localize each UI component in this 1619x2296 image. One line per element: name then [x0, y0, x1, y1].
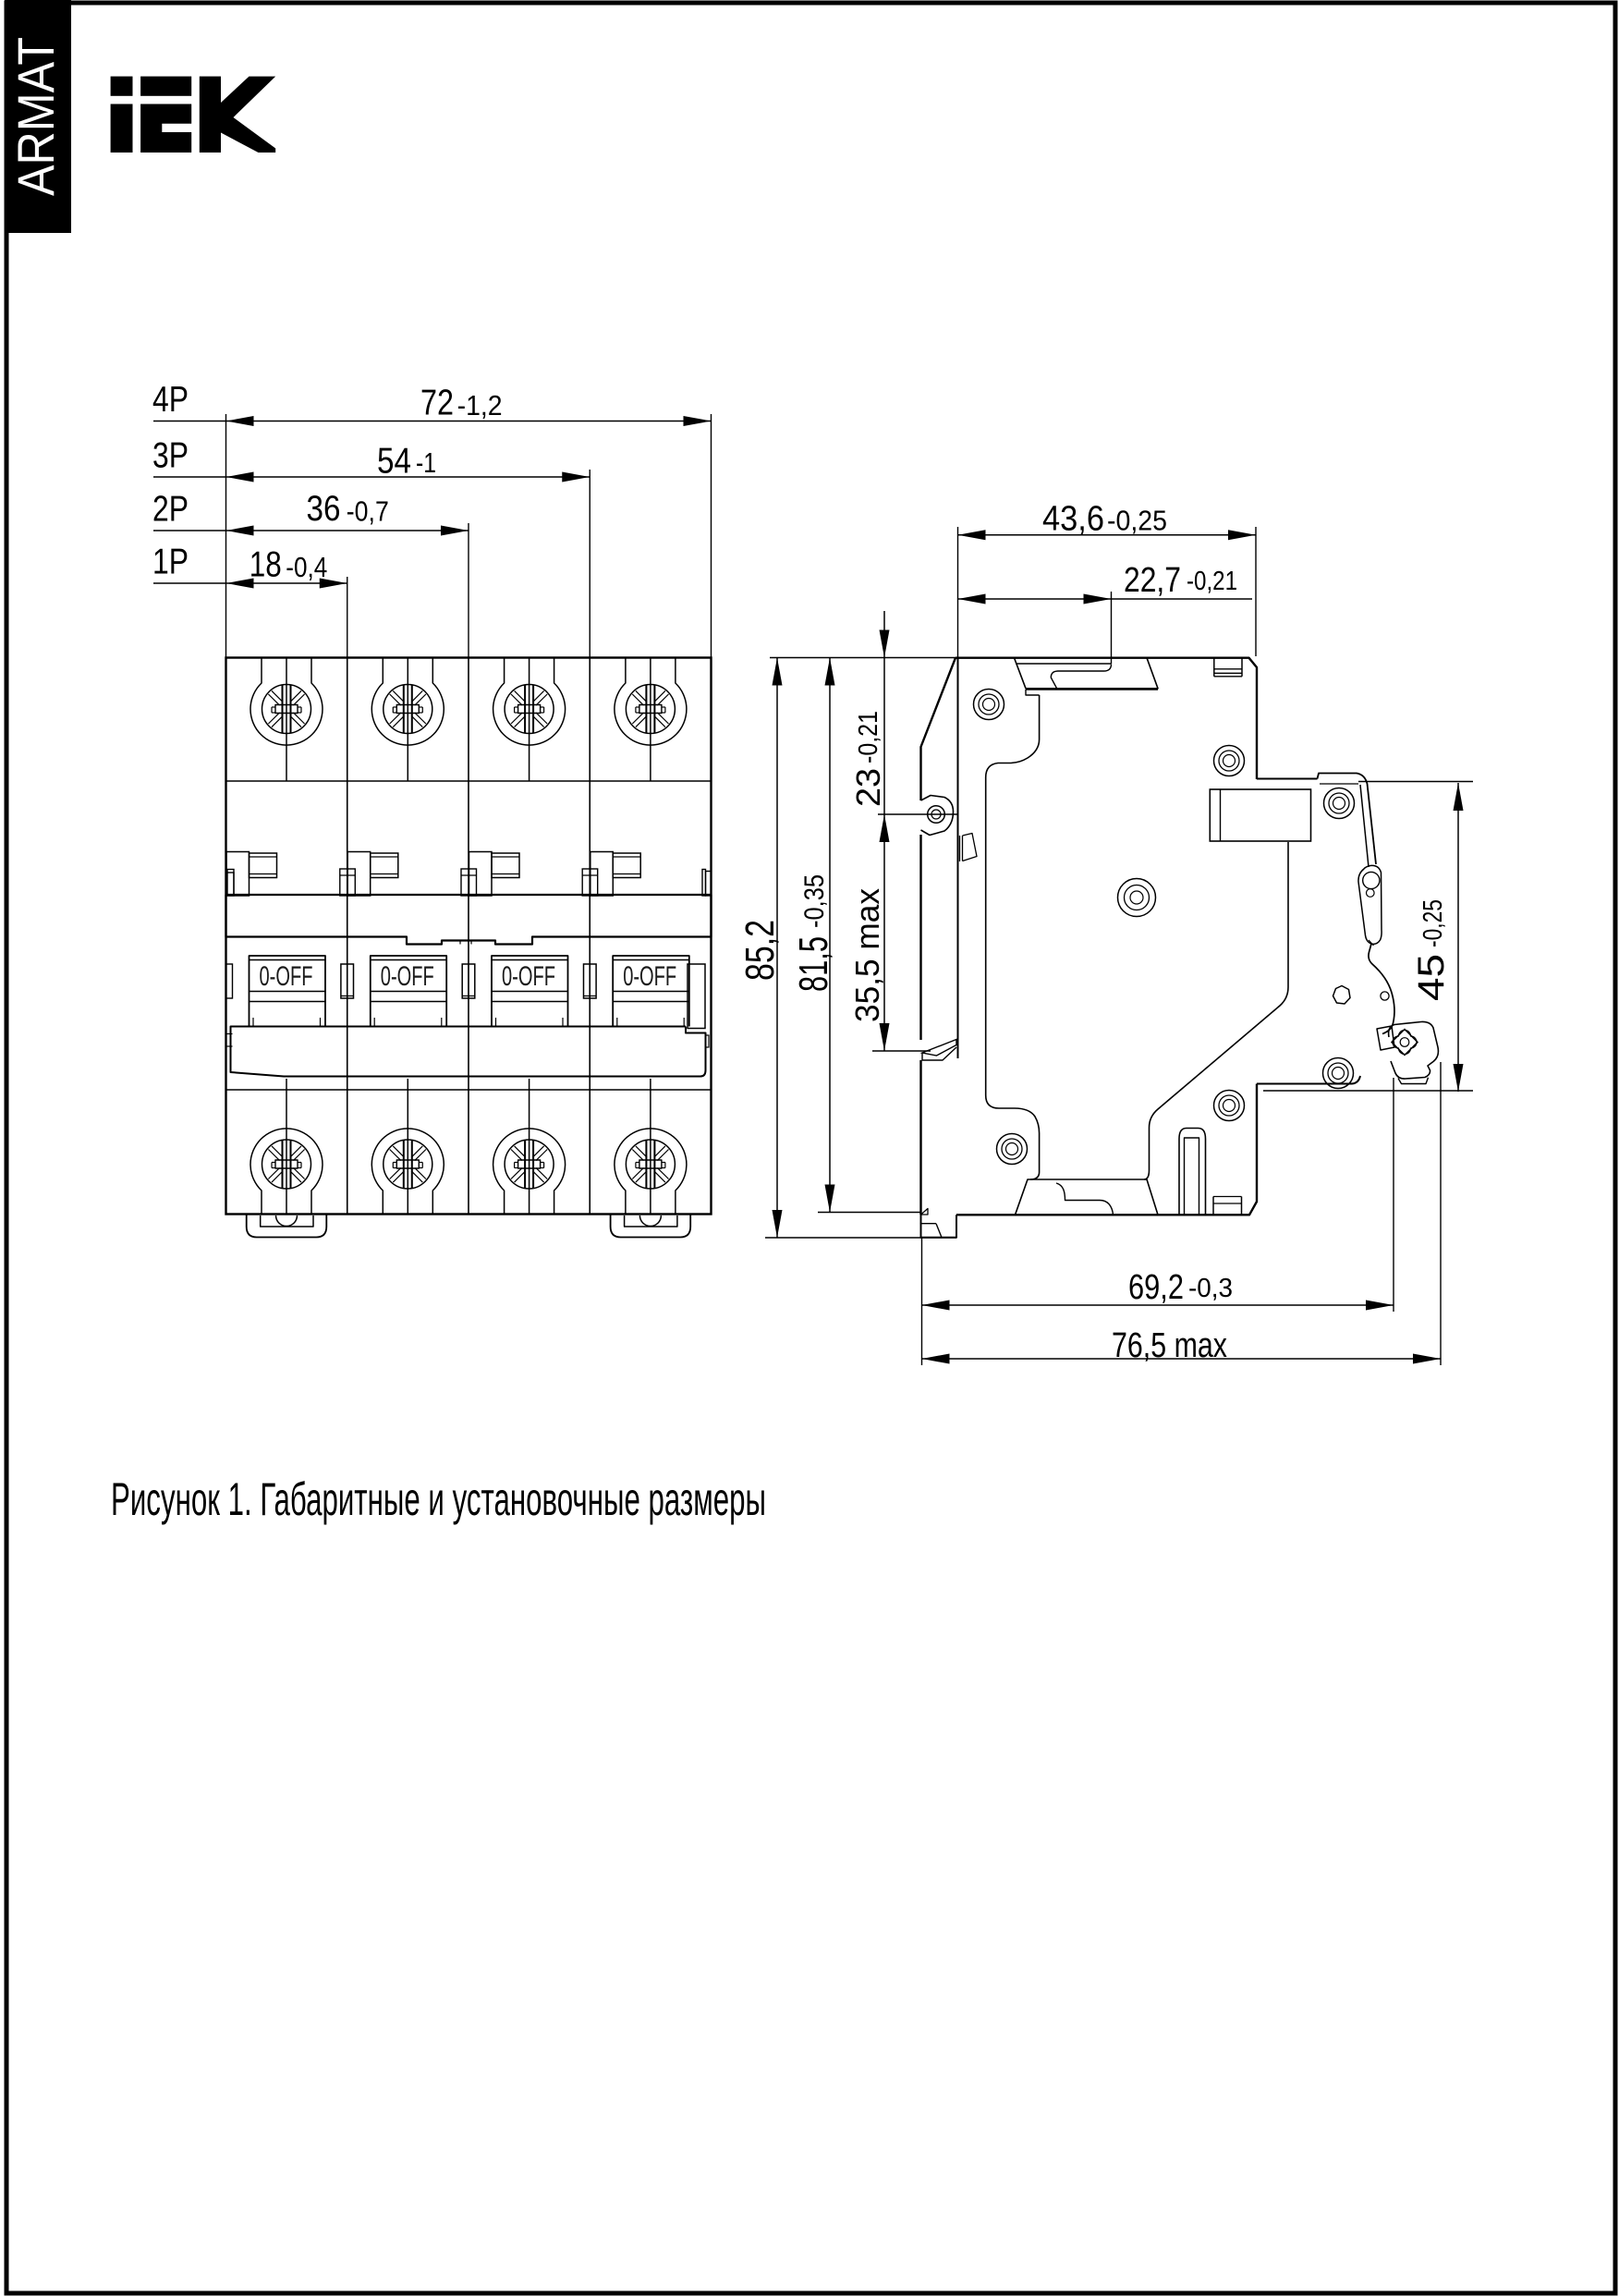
svg-text:43,6: 43,6: [1042, 500, 1104, 539]
svg-text:1P: 1P: [152, 543, 189, 582]
svg-text:0-OFF: 0-OFF: [381, 961, 434, 992]
svg-text:0-OFF: 0-OFF: [623, 961, 676, 992]
svg-text:72: 72: [420, 384, 454, 423]
svg-text:Рисунок 1. Габаритные и устано: Рисунок 1. Габаритные и установочные раз…: [111, 1473, 766, 1525]
svg-text:ARMAT: ARMAT: [6, 37, 65, 196]
svg-text:35,5 max: 35,5 max: [848, 888, 886, 1022]
svg-text:3P: 3P: [152, 436, 189, 476]
svg-text:36: 36: [307, 489, 341, 529]
svg-text:4P: 4P: [152, 380, 189, 420]
svg-text:2P: 2P: [152, 490, 189, 530]
svg-text:85,2: 85,2: [737, 920, 783, 981]
svg-text:-1,2: -1,2: [457, 389, 503, 421]
svg-text:-0,7: -0,7: [347, 495, 389, 528]
svg-text:-0,21: -0,21: [1187, 567, 1237, 596]
svg-text:22,7: 22,7: [1124, 561, 1181, 600]
svg-text:81,5: 81,5: [791, 936, 836, 992]
svg-text:76,5 max: 76,5 max: [1112, 1326, 1227, 1365]
svg-text:-0,35: -0,35: [799, 874, 830, 928]
svg-text:54: 54: [377, 442, 411, 482]
svg-text:-0,21: -0,21: [854, 711, 883, 763]
svg-text:45: 45: [1411, 954, 1452, 1001]
svg-text:-0,25: -0,25: [1418, 899, 1448, 947]
svg-text:0-OFF: 0-OFF: [260, 961, 313, 992]
svg-text:-0,3: -0,3: [1188, 1274, 1233, 1303]
svg-text:18: 18: [250, 545, 282, 585]
svg-text:-0,25: -0,25: [1107, 505, 1167, 537]
svg-text:-1: -1: [416, 446, 436, 479]
svg-text:23: 23: [849, 768, 887, 807]
svg-text:69,2: 69,2: [1128, 1268, 1184, 1307]
svg-text:0-OFF: 0-OFF: [502, 961, 555, 992]
svg-text:-0,4: -0,4: [286, 551, 327, 583]
